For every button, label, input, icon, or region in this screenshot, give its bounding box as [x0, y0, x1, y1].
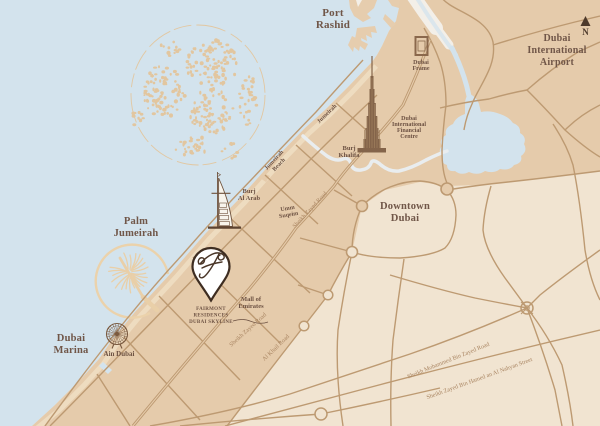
svg-text:Dubai: Dubai [391, 213, 419, 224]
svg-text:Frame: Frame [413, 66, 430, 72]
svg-text:Airport: Airport [540, 57, 575, 68]
svg-text:Marina: Marina [53, 345, 89, 356]
svg-text:N: N [582, 27, 589, 37]
svg-text:Burj: Burj [243, 188, 256, 195]
svg-text:Khalifa: Khalifa [339, 152, 361, 159]
svg-text:RESIDENCES: RESIDENCES [194, 314, 229, 319]
svg-text:Emirates: Emirates [238, 303, 264, 310]
svg-text:Dubai: Dubai [543, 33, 570, 44]
svg-text:FAIRMONT: FAIRMONT [196, 307, 226, 312]
svg-text:Palm: Palm [124, 216, 148, 227]
svg-text:Burj: Burj [343, 145, 356, 152]
svg-text:DUBAI SKYLINE: DUBAI SKYLINE [189, 320, 233, 325]
svg-text:Al Arab: Al Arab [238, 195, 261, 202]
svg-text:Centre: Centre [400, 134, 418, 140]
svg-text:Port: Port [322, 7, 344, 19]
svg-text:Downtown: Downtown [380, 201, 430, 212]
svg-text:Rashid: Rashid [316, 19, 350, 31]
svg-text:International: International [527, 45, 586, 56]
svg-text:Ain Dubai: Ain Dubai [104, 350, 135, 358]
svg-text:Mall of: Mall of [241, 296, 262, 303]
svg-text:Dubai: Dubai [57, 333, 85, 344]
svg-text:Jumeirah: Jumeirah [114, 228, 159, 239]
